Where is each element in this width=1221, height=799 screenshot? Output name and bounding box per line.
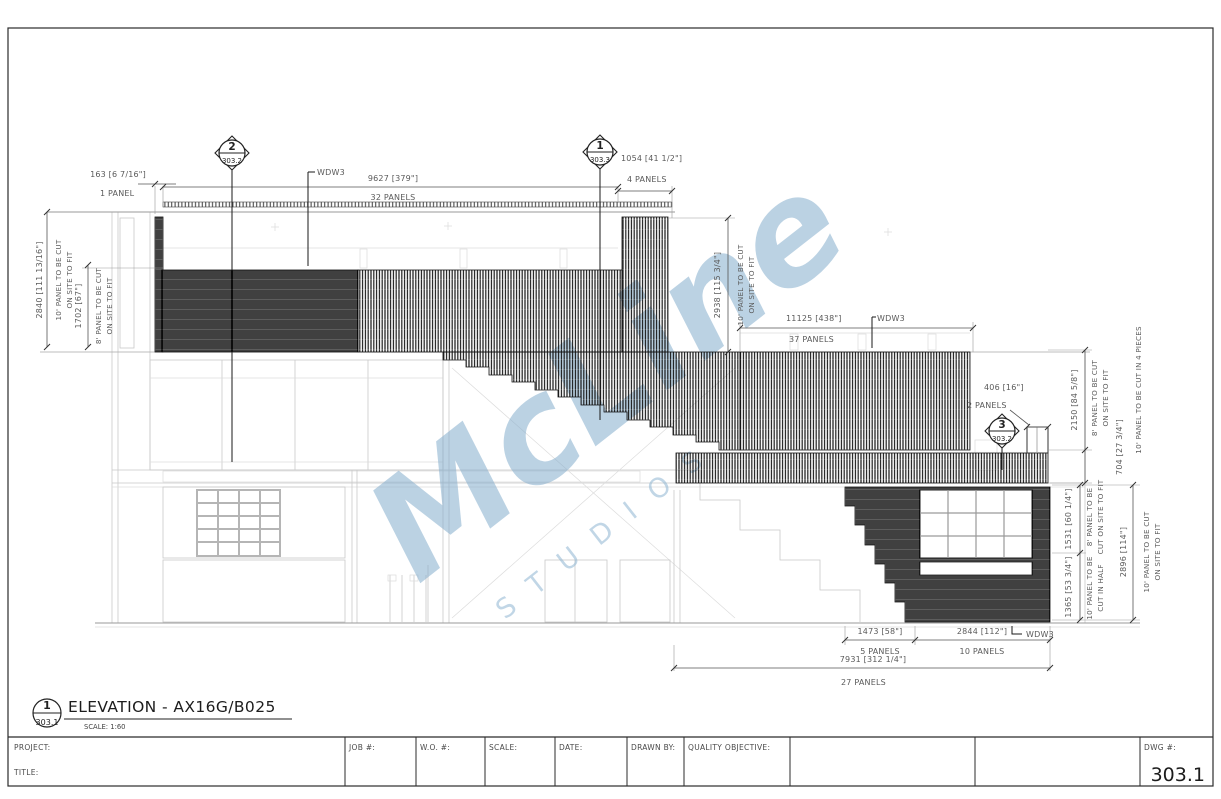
titleblock-wo-label: W.O. #: (420, 743, 450, 752)
coping-strip (163, 202, 672, 207)
label-4-panels: 4 PANELS (627, 175, 667, 184)
note-1365-b: CUT IN HALF (1096, 564, 1105, 611)
callout-1-number: 1 (596, 140, 603, 152)
titleblock-dwg-number: 303.1 (1151, 764, 1205, 786)
dim-2896: 2896 [114"] (1119, 527, 1128, 577)
dim-2150: 2150 [84 5/8"] (1070, 369, 1079, 430)
note-10-4pieces: 10' PANEL TO BE CUT IN 4 PIECES (1134, 326, 1143, 454)
dim-1531: 1531 [60 1/4"] (1064, 488, 1073, 549)
label-32-panels: 32 PANELS (371, 193, 416, 202)
note-2896-b: ON SITE TO FIT (1153, 523, 1162, 580)
callout-3-sheet: 303.2 (992, 435, 1012, 443)
dim-406: 406 [16"] (984, 383, 1024, 392)
lower-strip (676, 453, 1048, 483)
note-mid-2: ON SITE TO FIT (747, 256, 756, 313)
dim-1702: 1702 [67"] (74, 283, 83, 328)
label-27-panels: 27 PANELS (841, 678, 886, 687)
note-left-outer-2: ON SITE TO FIT (65, 251, 74, 308)
dim-11125: 11125 [438"] (786, 314, 842, 323)
drawing-sheet: McLine STUDIOS (0, 0, 1221, 795)
top-band-dark (162, 270, 358, 352)
callout-2-number: 2 (228, 141, 235, 153)
titleblock-date-label: DATE: (559, 743, 583, 752)
titleblock-project-label: PROJECT: (14, 743, 51, 752)
label-10-panels: 10 PANELS (960, 647, 1005, 656)
label-1-panel: 1 PANEL (100, 189, 135, 198)
view-scale: SCALE: 1:60 (84, 723, 126, 731)
view-bubble-number: 1 (43, 699, 51, 712)
note-mid-1: 10' PANEL TO BE CUT (736, 244, 745, 325)
titleblock-job-label: JOB #: (348, 743, 375, 752)
note-left-outer-1: 10' PANEL TO BE CUT (54, 239, 63, 320)
dim-9627: 9627 [379"] (368, 174, 418, 183)
dim-7931: 7931 [312 1/4"] (840, 655, 907, 664)
dim-704: 704 [27 3/4"] (1115, 419, 1124, 475)
titleblock-quality-label: QUALITY OBJECTIVE: (688, 743, 770, 752)
dim-1473: 1473 [58"] (857, 627, 902, 636)
dim-2844: 2844 [112"] (957, 627, 1007, 636)
dim-1054: 1054 [41 1/2"] (621, 154, 682, 163)
note-1365-a: 10' PANEL TO BE (1085, 556, 1094, 619)
callout-2-sheet: 303.2 (222, 157, 242, 165)
label-wdw3-mid: WDW3 (877, 314, 905, 323)
note-1531-b: CUT ON SITE TO FIT (1096, 479, 1105, 554)
view-bubble-sheet: 303.1 (36, 718, 59, 727)
callout-3-number: 3 (998, 419, 1005, 431)
note-2896-a: 10' PANEL TO BE CUT (1142, 511, 1151, 592)
spandrel-band (920, 562, 1032, 575)
titleblock-drawnby-label: DRAWN BY: (631, 743, 675, 752)
label-wdw3-top: WDW3 (317, 168, 345, 177)
note-right-upper-2: ON SITE TO FIT (1101, 369, 1110, 426)
note-right-upper-1: 8' PANEL TO BE CUT (1090, 360, 1099, 437)
note-left-inner-1: 8' PANEL TO BE CUT (94, 268, 103, 345)
elevation-drawing: McLine STUDIOS (0, 0, 1221, 795)
middle-band (740, 352, 970, 450)
callout-1-sheet: 303.3 (590, 156, 610, 164)
top-band (358, 270, 622, 352)
titleblock-title-label: TITLE: (13, 768, 39, 777)
label-37-panels: 37 PANELS (789, 335, 834, 344)
titleblock-scale-label: SCALE: (489, 743, 517, 752)
dim-163: 163 [6 7/16"] (90, 170, 146, 179)
tall-panel-block (622, 217, 668, 352)
note-left-inner-2: ON SITE TO FIT (105, 277, 114, 334)
dim-1365: 1365 [53 3/4"] (1064, 556, 1073, 617)
note-1531-a: 8' PANEL TO BE (1085, 488, 1094, 547)
dim-2938: 2938 [115 3/4"] (713, 252, 722, 319)
view-title: ELEVATION - AX16G/B025 (68, 698, 276, 716)
label-2-panels: 2 PANELS (967, 401, 1007, 410)
dim-2840: 2840 [111 13/16"] (35, 241, 44, 318)
titleblock-dwg-label: DWG #: (1144, 743, 1176, 752)
two-panel-block (1027, 427, 1048, 453)
label-wdw3-bottom: WDW3 (1026, 630, 1054, 639)
